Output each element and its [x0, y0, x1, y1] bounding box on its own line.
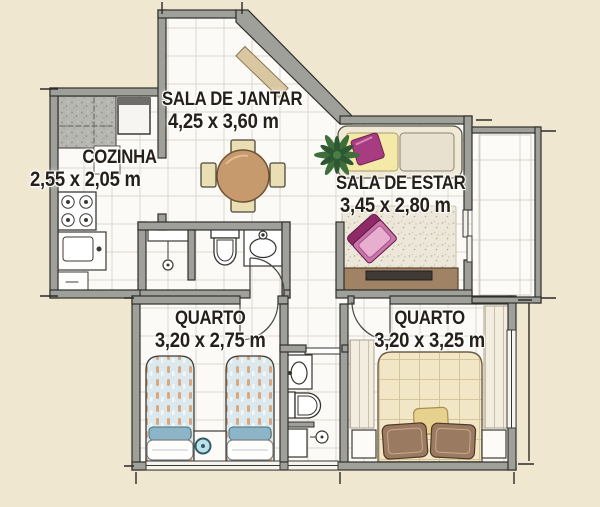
brown-pillow [430, 423, 476, 459]
room-dimensions: 3,20 x 3,25 m [368, 329, 491, 353]
window-bathroom-2 [288, 461, 338, 470]
floor-plan: SALA DE JANTAR 4,25 x 3,60 m COZINHA 2,5… [0, 0, 600, 507]
nightstand-right [482, 430, 506, 458]
bathroom-2-toilet [286, 392, 321, 418]
room-label-bedroom-1: QUARTO 3,20 x 2,75 m [146, 309, 292, 353]
room-name: SALA DE ESTAR [336, 174, 465, 194]
window-bedroom-2 [507, 330, 516, 428]
room-label-kitchen: COZINHA 2,55 x 2,05 m [30, 148, 176, 192]
bathroom-2-sink [286, 355, 312, 389]
window-bedroom-1 [146, 461, 280, 470]
bathroom-door-leaf [305, 348, 342, 354]
room-label-living: SALA DE ESTAR 3,45 x 2,80 m [336, 174, 483, 218]
room-dimensions: 3,20 x 2,75 m [146, 329, 274, 353]
single-bed-2 [226, 356, 274, 462]
room-name: QUARTO [146, 309, 274, 329]
tv [366, 271, 432, 280]
wardrobe-left [350, 340, 374, 428]
balcony-wall [472, 127, 540, 133]
kitchen-sink [58, 232, 106, 270]
nightstand-left [352, 430, 376, 458]
balcony-wall [535, 127, 541, 303]
room-dimensions: 2,55 x 2,05 m [30, 168, 158, 192]
room-name: QUARTO [368, 309, 491, 329]
floor-plan-drawing [0, 0, 600, 507]
room-label-bedroom-2: QUARTO 3,20 x 3,25 m [368, 309, 508, 353]
room-label-dining: SALA DE JANTAR 4,25 x 3,60 m [162, 90, 321, 134]
room-name: SALA DE JANTAR [162, 90, 302, 110]
room-name: COZINHA [30, 148, 158, 168]
room-dimensions: 3,45 x 2,80 m [340, 194, 466, 218]
nightstand [194, 431, 226, 462]
stove [58, 192, 96, 230]
single-bed-1 [146, 356, 194, 462]
dining-table [217, 150, 269, 202]
refrigerator [118, 98, 150, 134]
sofa [338, 126, 462, 178]
room-dimensions: 4,25 x 3,60 m [168, 110, 303, 134]
brown-pillow [382, 423, 428, 460]
tv-rack [340, 268, 458, 290]
kitchen-counter [58, 96, 116, 148]
double-bed [378, 352, 482, 462]
